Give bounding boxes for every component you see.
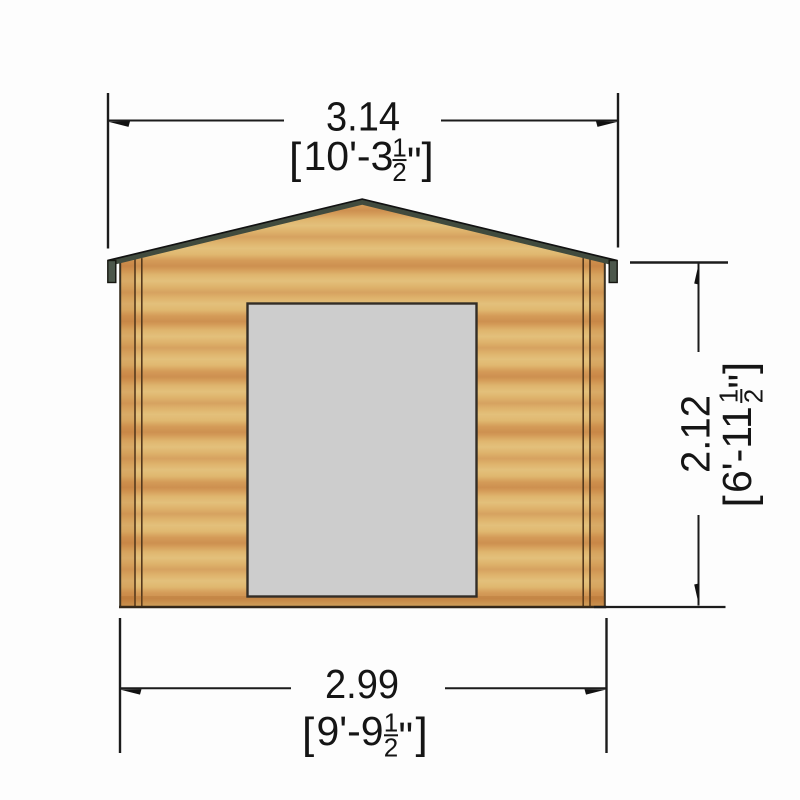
svg-text:]: ] xyxy=(416,709,428,758)
svg-text:": " xyxy=(407,139,422,185)
svg-text:[: [ xyxy=(715,495,764,507)
svg-text:6'-11: 6'-11 xyxy=(714,406,760,493)
svg-text:2: 2 xyxy=(738,389,768,403)
svg-text:2: 2 xyxy=(384,732,398,762)
svg-text:9'-9: 9'-9 xyxy=(317,708,384,754)
svg-text:": " xyxy=(720,374,766,389)
svg-text:2: 2 xyxy=(392,157,406,187)
svg-text:10'-3: 10'-3 xyxy=(304,133,394,179)
svg-text:2.12: 2.12 xyxy=(673,395,719,473)
svg-text:]: ] xyxy=(715,362,764,374)
svg-text:[: [ xyxy=(302,709,314,758)
svg-text:": " xyxy=(399,714,414,760)
svg-text:]: ] xyxy=(422,134,434,183)
svg-text:2.99: 2.99 xyxy=(325,661,399,707)
svg-text:[: [ xyxy=(289,134,301,183)
